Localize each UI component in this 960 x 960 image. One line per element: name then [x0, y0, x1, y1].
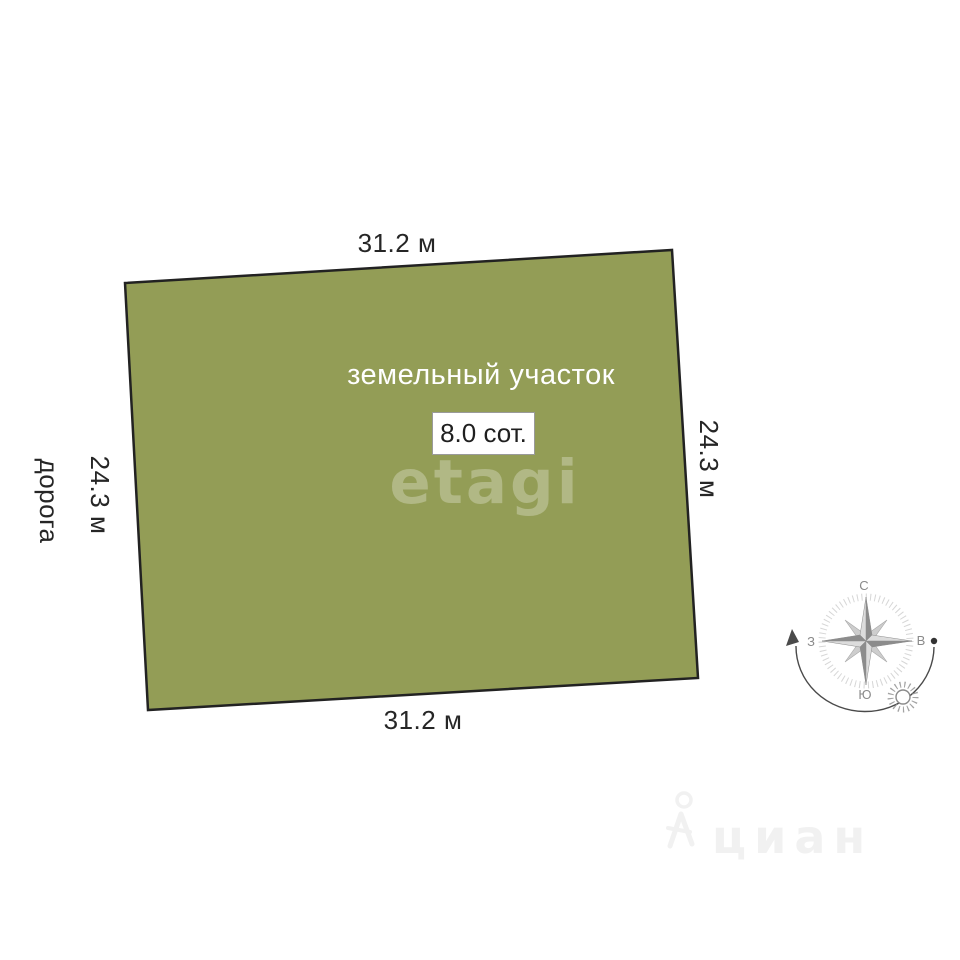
- area-badge: 8.0 сот.: [432, 412, 535, 455]
- compass-west-label: З: [807, 634, 815, 649]
- land-plot-scheme: { "plot": { "name_label": "земельный уча…: [0, 0, 960, 960]
- cian-pin-icon: [660, 788, 702, 852]
- dimension-left: 24.3 м: [85, 415, 115, 575]
- cian-watermark-text: циан: [712, 814, 873, 860]
- road-label: дорога: [34, 421, 64, 581]
- area-value: 8.0 сот.: [440, 418, 527, 449]
- etagi-watermark: etagi: [325, 450, 645, 516]
- compass-east-label: В: [917, 633, 926, 648]
- dimension-right: 24.3 м: [694, 379, 724, 539]
- dimension-bottom: 31.2 м: [343, 705, 503, 735]
- compass-north-label: С: [859, 578, 868, 593]
- plot-title: земельный участок: [311, 359, 651, 392]
- arc-start-dot: [931, 638, 937, 644]
- compass-south-label: Ю: [858, 687, 871, 702]
- arc-arrowhead: [786, 629, 799, 646]
- cian-watermark: циан: [660, 788, 873, 860]
- dimension-top: 31.2 м: [317, 228, 477, 258]
- compass-rose: С В Ю З: [770, 550, 960, 735]
